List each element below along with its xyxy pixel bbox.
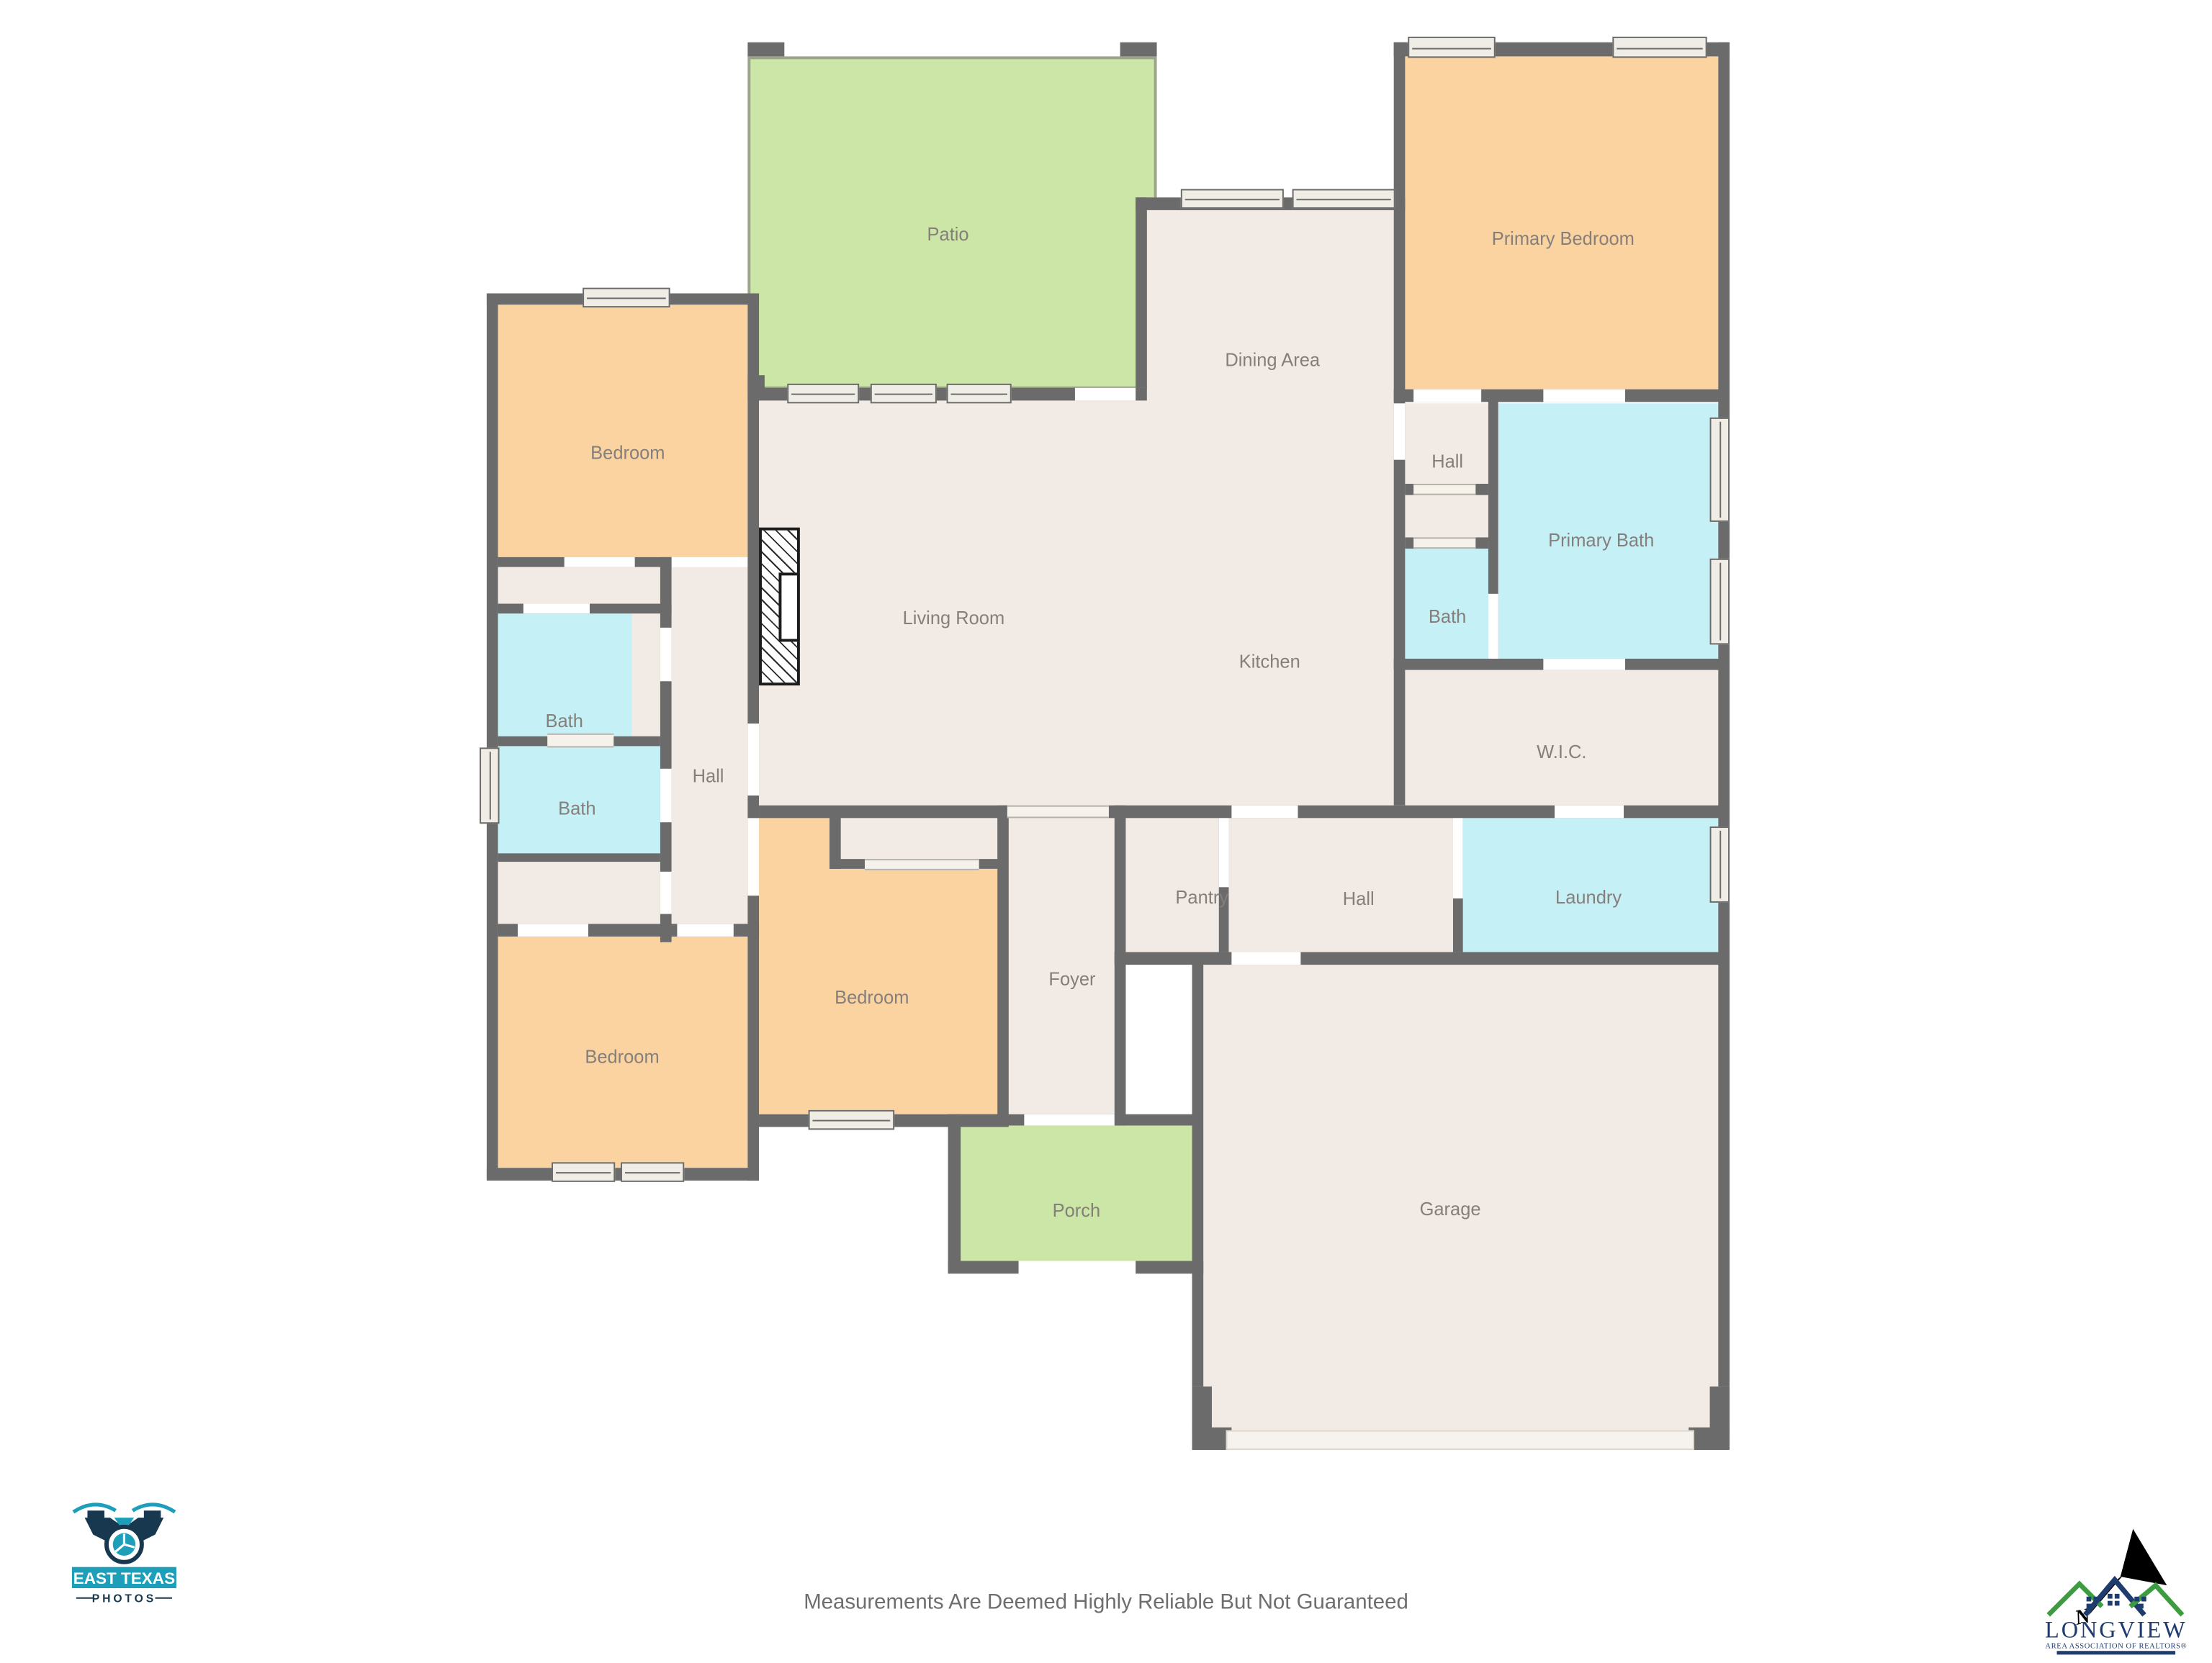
door-opening: [518, 924, 588, 937]
floor-plan: Patio Primary Bedroom Dining Area Bedroo…: [0, 0, 2212, 1659]
room-label-hall-left: Hall: [693, 767, 724, 785]
door-opening: [1453, 818, 1463, 898]
room-label-garage: Garage: [1420, 1199, 1481, 1217]
room-label-bath-left-lower: Bath: [558, 799, 595, 817]
room-label-bath-left-upper: Bath: [545, 711, 583, 729]
room-label-primary-bedroom: Primary Bedroom: [1492, 229, 1635, 247]
wall: [948, 1114, 961, 1272]
window: [621, 1162, 684, 1181]
window: [809, 1110, 895, 1130]
window: [1710, 559, 1730, 645]
room-label-pantry: Pantry: [1175, 888, 1228, 906]
wall: [1115, 806, 1126, 1126]
logo-subtitle-text: PHOTOS: [92, 1593, 156, 1605]
patio-corner-stub: [747, 375, 765, 389]
wall: [1192, 963, 1204, 1387]
room-bedroom-top-left: [498, 305, 748, 557]
door-opening: [1231, 952, 1300, 965]
window: [787, 384, 859, 403]
longview-tagline-text: AREA ASSOCIATION OF REALTORS®: [2046, 1642, 2187, 1650]
door-opening: [747, 818, 759, 896]
window: [1612, 37, 1707, 58]
window: [1710, 418, 1730, 522]
cased-opening: [1413, 484, 1475, 495]
door-opening: [660, 872, 672, 914]
cased-opening: [1007, 806, 1109, 819]
room-label-hall-right-small: Hall: [1431, 452, 1463, 470]
closet-right-small: [1405, 495, 1488, 538]
wall: [1689, 1428, 1730, 1450]
room-laundry: [1463, 818, 1719, 952]
room-label-bedroom-top-left: Bedroom: [590, 443, 665, 461]
closet-top-left: [498, 567, 660, 604]
wall: [1718, 42, 1730, 1387]
room-hall-bottom: [1228, 818, 1453, 952]
closet-center-bedroom: [841, 818, 997, 859]
door-opening: [1555, 806, 1624, 819]
window: [1292, 189, 1395, 209]
room-porch: [961, 1125, 1192, 1261]
room-label-kitchen: Kitchen: [1239, 652, 1300, 670]
room-label-hall-bottom: Hall: [1343, 889, 1375, 907]
room-label-laundry: Laundry: [1555, 888, 1622, 906]
door-opening: [1024, 1114, 1114, 1126]
door-opening: [565, 557, 635, 567]
door-opening: [523, 604, 590, 614]
room-dining-kitchen-column: [1147, 209, 1394, 400]
door-opening: [660, 628, 672, 681]
room-label-porch: Porch: [1053, 1201, 1101, 1219]
room-primary-bedroom: [1405, 56, 1718, 389]
wall: [498, 853, 660, 862]
window: [1408, 37, 1495, 58]
room-label-wic: W.I.C.: [1537, 743, 1586, 761]
room-hall-left: [672, 567, 751, 942]
door-opening: [660, 769, 672, 822]
room-label-bath-right-small: Bath: [1429, 607, 1466, 625]
longview-logo-icon: N LONGVIEW AREA ASSOCIATION OF REALTORS®: [2046, 1526, 2187, 1656]
door-opening: [1488, 594, 1498, 659]
window: [552, 1162, 615, 1181]
wall: [1136, 1261, 1203, 1274]
room-label-bedroom-center: Bedroom: [835, 988, 909, 1006]
room-label-bedroom-bottom-left: Bedroom: [585, 1047, 659, 1065]
door-opening: [1219, 818, 1229, 887]
door-opening: [1543, 659, 1625, 670]
longview-name-text: LONGVIEW: [2046, 1617, 2187, 1643]
room-label-foyer: Foyer: [1048, 970, 1095, 988]
wall: [1115, 952, 1728, 965]
fireplace-firebox: [778, 572, 799, 641]
closet-beside-bath: [632, 613, 660, 736]
room-bath-right-small: [1405, 549, 1488, 659]
door-opening: [1543, 389, 1625, 402]
patio-corner-stub: [747, 42, 784, 57]
cased-opening: [865, 859, 979, 870]
patio-corner-stub: [1120, 42, 1157, 57]
wall: [1394, 42, 1406, 209]
room-label-primary-bath: Primary Bath: [1548, 531, 1654, 549]
wall: [948, 1261, 1019, 1274]
drone-logo-icon: EAST TEXAS PHOTOS: [68, 1490, 181, 1608]
room-living-kitchen-open-area: [759, 400, 1394, 805]
east-texas-photos-logo: EAST TEXAS PHOTOS: [68, 1490, 181, 1608]
wall: [487, 294, 498, 1179]
door-opening: [677, 924, 733, 937]
window: [871, 384, 937, 403]
room-label-living-room: Living Room: [903, 608, 1005, 626]
door-opening: [747, 724, 759, 796]
window: [583, 288, 670, 307]
window: [947, 384, 1012, 403]
closet-below-bath: [498, 862, 660, 924]
window: [1181, 189, 1284, 209]
room-pantry: [1124, 818, 1218, 952]
wall: [1394, 209, 1406, 806]
room-label-patio: Patio: [927, 225, 969, 243]
door-opening: [1394, 403, 1406, 459]
logo-title-text: EAST TEXAS: [73, 1569, 175, 1587]
disclaimer-text: Measurements Are Deemed Highly Reliable …: [804, 1590, 1408, 1614]
longview-realtors-logo: N LONGVIEW AREA ASSOCIATION OF REALTORS®: [2046, 1526, 2187, 1656]
door-opening: [1075, 388, 1136, 401]
cased-opening: [547, 734, 613, 748]
room-wic: [1405, 670, 1718, 806]
wall: [1710, 1387, 1730, 1433]
wall: [997, 806, 1009, 1126]
room-label-dining-area: Dining Area: [1225, 351, 1320, 369]
wall: [1136, 197, 1147, 387]
cased-opening: [1413, 537, 1475, 549]
window: [1710, 826, 1730, 903]
door-opening: [1413, 389, 1481, 402]
page-canvas: Patio Primary Bedroom Dining Area Bedroo…: [0, 0, 2212, 1659]
wall: [1192, 1387, 1212, 1433]
room-bedroom-center-upper: [759, 818, 829, 874]
door-opening: [1231, 806, 1298, 819]
logo-underline: [2057, 1651, 2176, 1654]
window: [480, 747, 499, 824]
garage-door: [1226, 1430, 1694, 1450]
